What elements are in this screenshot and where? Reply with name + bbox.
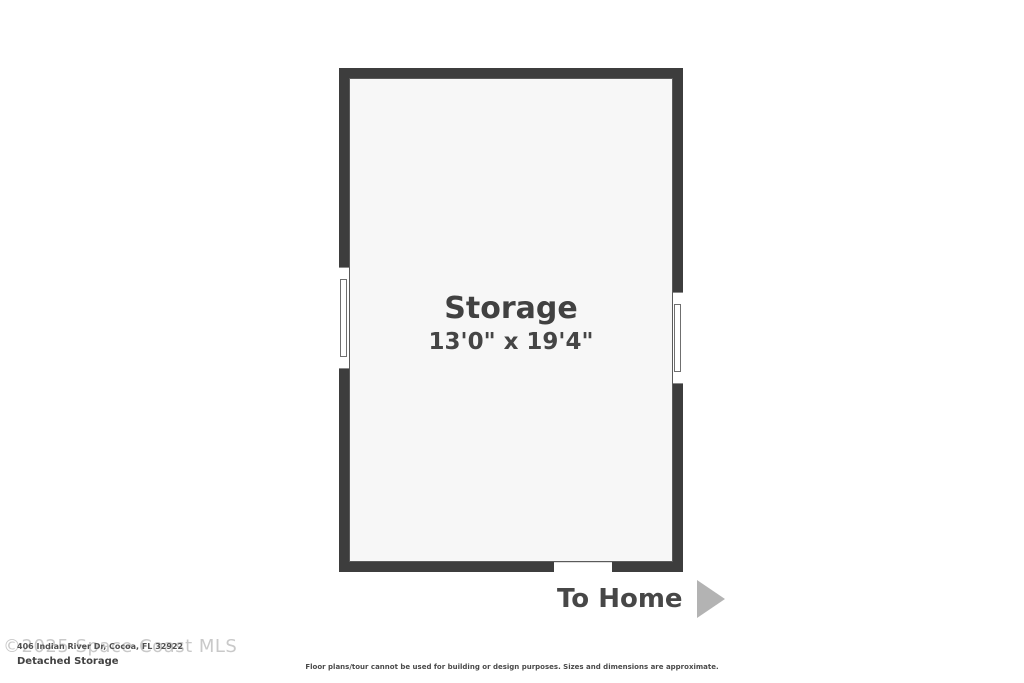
arrow-right-icon xyxy=(697,580,725,618)
left-wall-window xyxy=(339,267,349,369)
door-opening xyxy=(554,562,612,572)
window-glass xyxy=(674,304,681,372)
room-label: Storage 13'0" x 19'4" xyxy=(350,291,672,357)
right-wall-window xyxy=(673,292,683,384)
storage-floorplan: Storage 13'0" x 19'4" xyxy=(339,68,683,572)
storage-room-floor: Storage 13'0" x 19'4" xyxy=(349,78,673,562)
room-dimensions: 13'0" x 19'4" xyxy=(350,327,672,357)
to-home-indicator: To Home xyxy=(557,578,725,620)
window-glass xyxy=(340,279,347,357)
room-name: Storage xyxy=(350,291,672,327)
property-address: 406 Indian River Dr, Cocoa, FL 32922 xyxy=(17,642,183,651)
disclaimer-text: Floor plans/tour cannot be used for buil… xyxy=(0,663,1024,671)
to-home-label: To Home xyxy=(557,584,683,614)
